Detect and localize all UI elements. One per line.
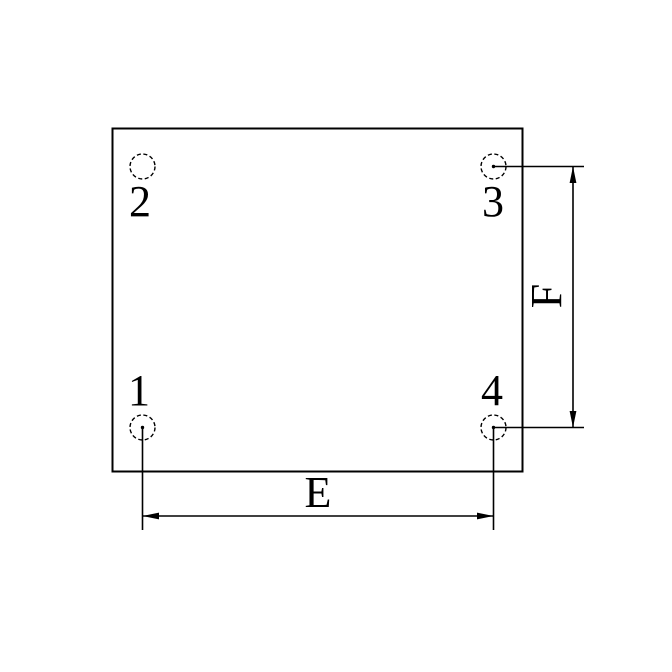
arrowhead-e-right bbox=[477, 513, 494, 520]
dimension-label-f: F bbox=[522, 284, 571, 308]
pad-label-2: 2 bbox=[129, 177, 151, 226]
pad-label-4: 4 bbox=[481, 366, 503, 415]
dimension-label-e: E bbox=[305, 468, 332, 517]
arrowhead-f-bottom bbox=[570, 411, 577, 428]
arrowhead-e-left bbox=[143, 513, 160, 520]
plate-outline bbox=[113, 129, 523, 472]
technical-drawing: 1 2 3 4 E F bbox=[0, 0, 672, 672]
drawing-canvas: 1 2 3 4 E F bbox=[0, 0, 672, 672]
arrowhead-f-top bbox=[570, 167, 577, 184]
pad-label-3: 3 bbox=[482, 177, 504, 226]
pad-circle-2 bbox=[130, 154, 155, 179]
pad-label-1: 1 bbox=[128, 366, 150, 415]
